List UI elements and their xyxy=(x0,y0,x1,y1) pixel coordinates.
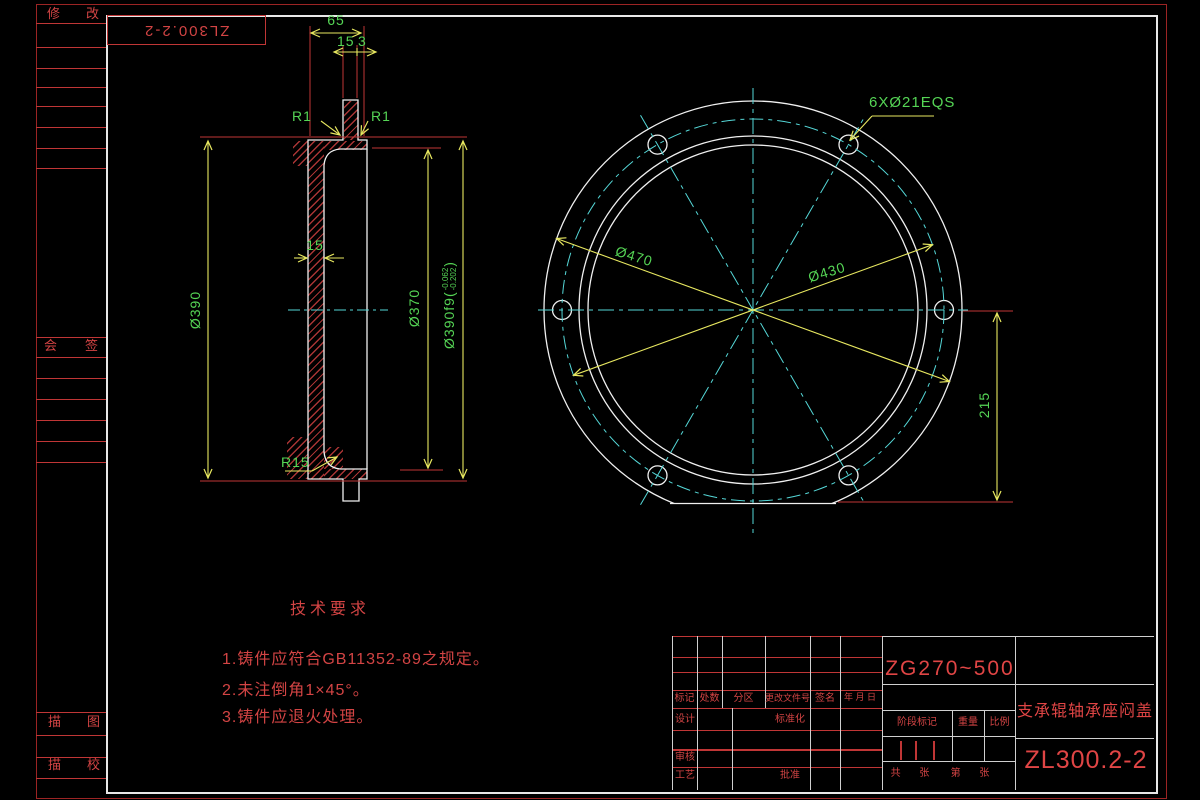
titleblock-line xyxy=(697,636,698,790)
titleblock-line xyxy=(882,736,1015,737)
dim-flat-height: 215 xyxy=(977,385,993,425)
spigot-close: ) xyxy=(442,261,457,267)
titleblock-row-process: 工艺 xyxy=(675,770,695,781)
dim-total-depth: 65 xyxy=(316,13,356,28)
dim-gap: 3 xyxy=(358,34,367,49)
titleblock-drawing-no: ZL300.2-2 xyxy=(1016,747,1156,775)
titleblock-sheets-total: 共 张 xyxy=(888,768,940,779)
titleblock-line xyxy=(672,636,673,790)
titleblock-col-mark: 标记 xyxy=(672,693,697,704)
titleblock-line xyxy=(840,636,841,790)
titleblock-line xyxy=(672,767,882,768)
cad-drawing-canvas: 修改 会签 描图 描校 ZL300.2-2 xyxy=(0,0,1200,800)
titleblock-line xyxy=(810,636,811,790)
spigot-base: Ø390f9( xyxy=(442,291,457,349)
titleblock-tick xyxy=(915,741,917,760)
titleblock-line xyxy=(882,684,1154,685)
titleblock-col-change-doc: 更改文件号 xyxy=(765,694,810,704)
titleblock-tick xyxy=(933,741,935,760)
titleblock-line xyxy=(672,657,882,658)
titleblock-sheet-no: 第 张 xyxy=(946,768,1002,779)
section-dimension-lines xyxy=(208,33,463,478)
titleblock-line xyxy=(672,749,882,751)
note-bolt-holes: 6XØ21EQS xyxy=(869,95,955,112)
section-outline xyxy=(308,100,367,501)
fillet-r15: R15 xyxy=(281,455,310,470)
titleblock-line xyxy=(882,636,1154,637)
titleblock-line xyxy=(672,672,882,673)
dim-flange-thickness: 15 xyxy=(337,34,355,49)
spigot-tol-lower: -0.202 xyxy=(450,268,458,291)
titleblock-line xyxy=(882,710,1015,711)
titleblock-scale: 比例 xyxy=(984,717,1015,728)
section-extension-lines xyxy=(200,26,467,481)
titleblock-row-audit: 审核 xyxy=(675,752,695,763)
titleblock-part-name: 支承辊轴承座闷盖 xyxy=(1016,703,1154,721)
titleblock-line xyxy=(882,636,883,790)
titleblock-col-zone: 分区 xyxy=(722,693,765,704)
dim-dia-inner: Ø370 xyxy=(406,268,424,348)
titleblock-tick xyxy=(900,741,902,760)
front-view-dimension-lines xyxy=(557,116,997,500)
titleblock-line xyxy=(672,730,882,731)
tech-req-item-2: 2.未注倒角1×45°。 xyxy=(222,682,370,700)
dim-dia-spigot: Ø390f9(-0.062-0.202) xyxy=(441,240,459,370)
titleblock-col-count: 处数 xyxy=(697,693,722,704)
tech-req-item-3: 3.铸件应退火处理。 xyxy=(222,709,373,727)
titleblock-stage-mark: 阶段标记 xyxy=(882,717,952,728)
drawing-geometry xyxy=(0,0,1200,800)
titleblock-row-design: 设计 xyxy=(675,714,695,725)
titleblock-line xyxy=(1015,738,1154,739)
fillet-r1-right: R1 xyxy=(371,109,391,124)
titleblock-col-sign: 签名 xyxy=(810,693,840,704)
titleblock-line xyxy=(672,708,882,709)
titleblock-row-standard: 标准化 xyxy=(768,714,812,725)
titleblock-material: ZG270~500 xyxy=(885,657,1015,680)
titleblock-col-date: 年 月 日 xyxy=(838,693,882,703)
titleblock-weight: 重量 xyxy=(952,717,984,728)
tech-req-item-1: 1.铸件应符合GB11352-89之规定。 xyxy=(222,651,490,669)
titleblock-line xyxy=(672,636,882,637)
titleblock-line xyxy=(882,761,1015,762)
titleblock-line xyxy=(672,690,882,691)
dim-dia-plate: Ø390 xyxy=(187,270,205,350)
titleblock-row-approve: 批准 xyxy=(768,770,812,781)
titleblock-line xyxy=(732,708,733,790)
dim-wall-thickness: 15 xyxy=(300,238,330,253)
tech-req-title: 技术要求 xyxy=(290,601,370,619)
fillet-r1-left: R1 xyxy=(292,109,312,124)
